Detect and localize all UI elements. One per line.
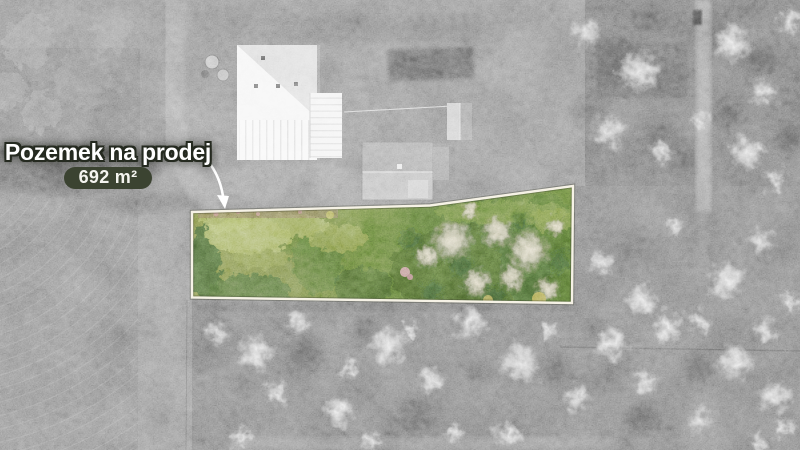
grain-fine — [0, 0, 800, 450]
aerial-photo-scene — [0, 0, 800, 450]
aerial-photo: Pozemek na prodej 692 m² — [0, 0, 800, 450]
